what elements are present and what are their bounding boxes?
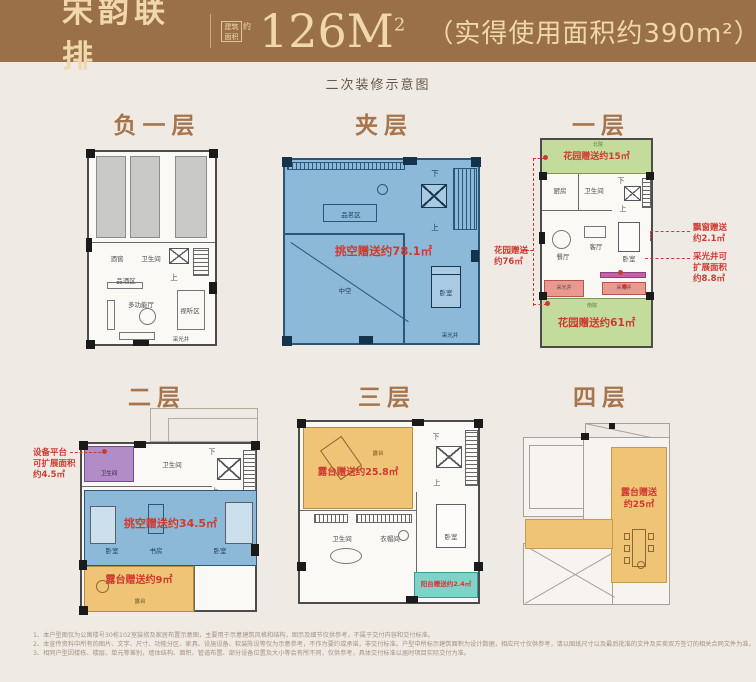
seal-text-2: 面积: [224, 33, 238, 41]
seal-text-about: 约: [243, 21, 251, 32]
floor-title-jc: 夹层: [355, 106, 413, 140]
stair-down-f2: 下: [209, 449, 216, 456]
f1-stairs-icon: [642, 178, 651, 208]
room-closet: 衣帽间: [380, 536, 400, 543]
room-bath-b1: 卫生间: [141, 256, 161, 263]
b1-elevator-icon: [169, 248, 189, 264]
room-lightwell-jc: 采光井: [442, 334, 459, 340]
room-lightwell-left: 采光井: [556, 286, 571, 291]
disclaimer-line-3: 3、相同户型因楼栋、楼层、单元等差别，墙体结构、面积、管道布置、部分设备位置及大…: [33, 651, 470, 657]
room-multi-hall: 多功能厅: [128, 302, 154, 309]
floor-title-f2: 二层: [128, 378, 186, 412]
stair-up-jc: 上: [431, 224, 439, 232]
bay-window-strip: [600, 272, 646, 278]
room-bed2-f2: 卧室: [214, 548, 227, 555]
header-divider: [210, 14, 211, 48]
room-study: 书房: [150, 548, 163, 555]
annotation-dash-well: [645, 258, 690, 259]
floor-title-f4: 四层: [573, 378, 631, 412]
room-living: 客厅: [590, 244, 603, 251]
plan-second-floor: 卫生间 卫生间 下 上 卧室 书房 卧室 挑空赠送约34.5㎡ 露台 露台赠送约…: [80, 442, 257, 612]
room-wine-cellar: 酒窖: [111, 256, 124, 263]
room-bath2-f2: 卫生间: [162, 462, 182, 469]
seal-text-1: 建筑: [224, 23, 238, 31]
jc-stairs-icon: [453, 168, 477, 230]
area-seal: 建筑 面积 约: [221, 21, 251, 42]
stair-down-f1: 下: [618, 178, 625, 185]
room-av-area: 视听区: [180, 308, 200, 315]
room-bath1-f2: 卫生间: [101, 472, 118, 478]
room-bath-f1: 卫生间: [584, 188, 604, 195]
stair-down-jc: 下: [431, 170, 439, 178]
room-lightwell-b1: 采光井: [173, 338, 190, 344]
room-tea-area: 品茗区: [341, 212, 361, 219]
gift-terrace-9: 露台赠送约9㎡: [84, 576, 194, 586]
terrace-zone-f4-horizontal: [525, 519, 613, 549]
area-note: （实得使用面积约390m²）: [427, 13, 756, 50]
annotation-dash-bay: [650, 231, 690, 232]
disclaimer-line-1: 1、本户型图仅为公寓楼号30栋102室装修及家居布置示意图，主要用于示意建筑风格…: [33, 633, 434, 639]
f2-elevator-icon: [217, 458, 241, 480]
subtitle: 二次装修示意图: [0, 74, 756, 93]
gift-void-781: 挑空赠送约78.1㎡: [285, 246, 482, 258]
plan-basement: 酒窖 卫生间 上 品酒区 多功能厅 视听区 采光井: [87, 150, 217, 346]
area-number: 126M2: [259, 8, 405, 54]
gift-void-345: 挑空赠送约34.5㎡: [82, 518, 259, 529]
room-bedroom-f3: 卧室: [445, 534, 458, 541]
header-bar: 宋韵联排 建筑 面积 约 126M2 （实得使用面积约390m²）: [0, 0, 756, 62]
room-bath-f3: 卫生间: [332, 536, 352, 543]
gift-terrace-258: 露台赠送约25.8㎡: [303, 468, 413, 478]
room-void: 中空: [339, 288, 352, 295]
stair-up-b1: 上: [170, 274, 178, 282]
gift-garden-15: 花园赠送约15㎡: [542, 153, 651, 162]
f3-bed-icon: [436, 504, 466, 548]
annotation-dash-equipment: [70, 452, 106, 453]
room-north-yard: 北院: [593, 143, 603, 148]
brand-title: 宋韵联排: [62, 0, 204, 76]
room-bedroom-jc: 卧室: [440, 290, 453, 297]
annotation-bay-window: 飘窗赠送 约2.1㎡: [693, 223, 727, 245]
stair-up-f1: 上: [620, 206, 627, 213]
gift-terrace-25: 露台赠送 约25㎡: [611, 487, 667, 511]
floorplan-poster: 宋韵联排 建筑 面积 约 126M2 （实得使用面积约390m²） 二次装修示意…: [0, 0, 756, 682]
annotation-dash-line-left: [533, 158, 534, 306]
stair-up-f3: 上: [434, 480, 441, 487]
f3-stairs-icon: [465, 430, 478, 486]
f3-elevator-icon: [436, 446, 462, 468]
jc-elevator-icon: [421, 184, 447, 208]
gift-garden-61: 花园赠送约61㎡: [542, 318, 651, 329]
plan-fourth-floor: 露台赠送 约25㎡: [523, 423, 670, 609]
f1-elevator-icon: [624, 186, 641, 201]
room-terrace-f2: 露台: [134, 600, 145, 606]
floor-title-b1: 负一层: [114, 106, 201, 140]
plan-mezzanine: 品茗区 下 上 挑空赠送约78.1㎡ 中空 卧室 采光井: [283, 158, 480, 345]
room-tasting: 品酒区: [116, 278, 136, 285]
plan-third-floor: 露台 露台赠送约25.8㎡ 下 上 卫生间 衣帽间 卧室 阳台赠送约2.4㎡: [298, 420, 480, 604]
stair-down-f3: 下: [433, 434, 440, 441]
disclaimer-line-2: 2、本宣传资料中所有的图片、文字、尺寸、功能分区、家具、设施设备、软装陈设等仅为…: [33, 642, 755, 648]
floor-title-f3: 三层: [358, 378, 416, 412]
jc-bed-icon: [431, 266, 461, 308]
room-south-yard: 南院: [587, 304, 597, 309]
plan-first-floor: 北院 花园赠送约15㎡ 厨房 卫生间 下 上 餐厅 客厅 卧室 采光井 采光井 …: [540, 138, 653, 348]
room-dining: 餐厅: [557, 254, 570, 261]
room-terrace-f3: 露台: [372, 452, 383, 458]
room-bed1-f2: 卧室: [106, 548, 119, 555]
area-sup: 2: [394, 15, 405, 36]
gift-balcony-24: 阳台赠送约2.4㎡: [414, 581, 478, 588]
room-bedroom-f1: 卧室: [623, 256, 636, 263]
b1-stairs-icon: [193, 248, 209, 276]
f1-bed-icon: [618, 222, 640, 252]
annotation-lightwell-expand: 采光井可 扩展面积 约8.8㎡: [693, 252, 727, 285]
floor-title-f1: 一层: [572, 106, 630, 140]
room-kitchen: 厨房: [554, 188, 567, 195]
